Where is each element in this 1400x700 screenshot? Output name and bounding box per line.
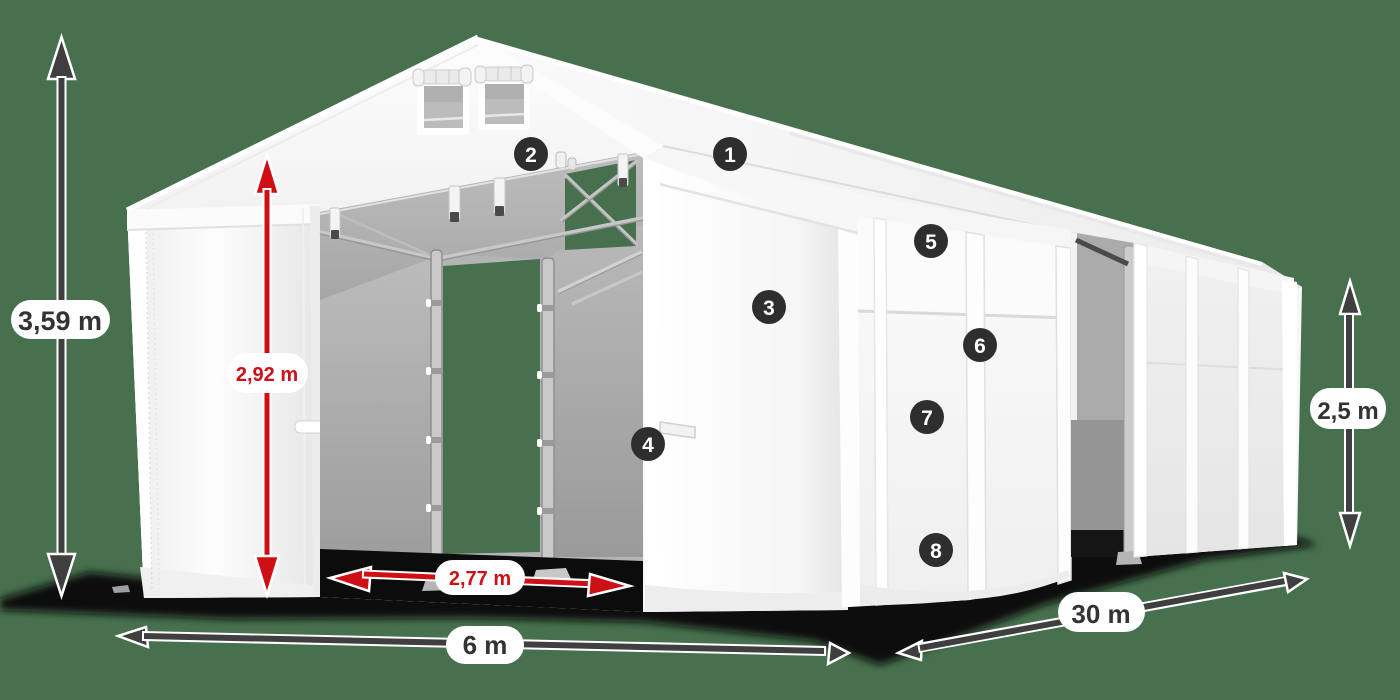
svg-text:5: 5 xyxy=(925,231,937,254)
svg-text:2,77 m: 2,77 m xyxy=(449,568,511,590)
svg-text:4: 4 xyxy=(642,434,654,457)
svg-text:2: 2 xyxy=(525,144,537,167)
svg-text:8: 8 xyxy=(930,540,942,563)
svg-text:1: 1 xyxy=(724,144,736,167)
svg-text:6: 6 xyxy=(974,335,986,358)
svg-text:2,92 m: 2,92 m xyxy=(236,364,298,386)
svg-text:3: 3 xyxy=(763,297,775,320)
svg-text:3,59 m: 3,59 m xyxy=(18,306,102,336)
svg-text:2,5 m: 2,5 m xyxy=(1317,398,1378,425)
svg-text:6 m: 6 m xyxy=(463,630,508,660)
svg-text:30 m: 30 m xyxy=(1071,599,1130,629)
svg-text:7: 7 xyxy=(921,407,933,430)
